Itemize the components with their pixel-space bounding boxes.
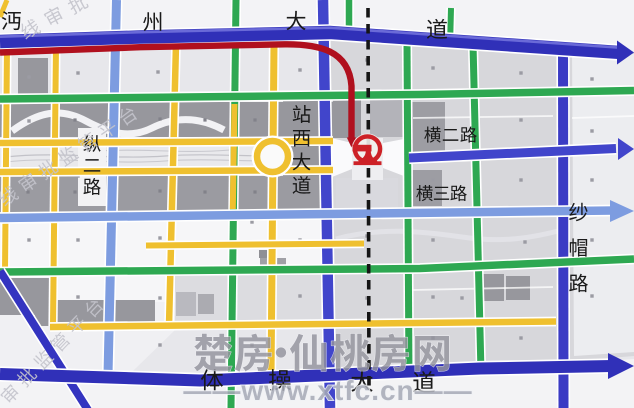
svg-text:——www.xtfc.cn——: ——www.xtfc.cn——	[183, 375, 472, 406]
